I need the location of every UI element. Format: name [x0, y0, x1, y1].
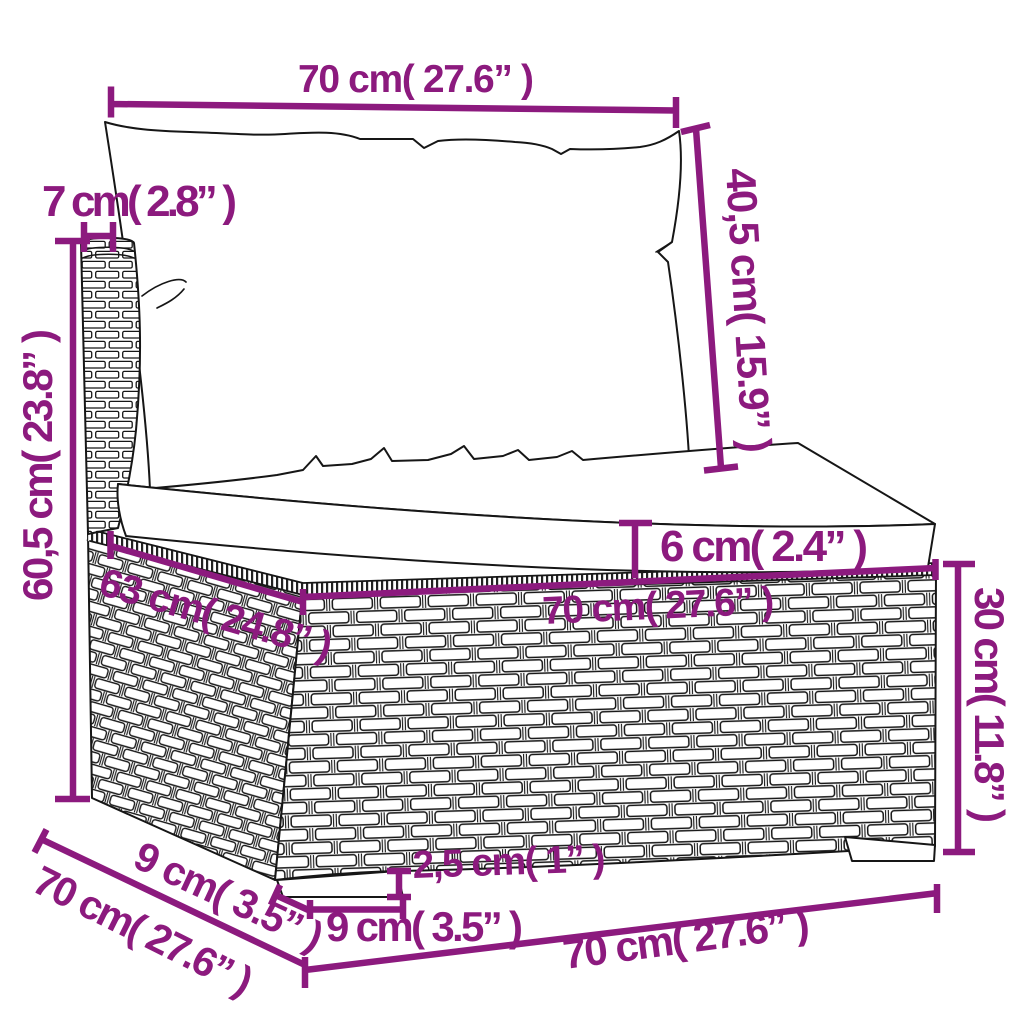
svg-text:70 cm( 27.6” ): 70 cm( 27.6” )	[298, 58, 534, 101]
svg-text:7 cm( 2.8” ): 7 cm( 2.8” )	[42, 177, 237, 226]
svg-text:9 cm( 3.5” ): 9 cm( 3.5” )	[326, 903, 523, 950]
svg-text:2,5 cm( 1” ): 2,5 cm( 1” )	[412, 837, 606, 887]
svg-text:30 cm( 11.8” ): 30 cm( 11.8” )	[966, 587, 1013, 823]
svg-text:60,5 cm( 23.8” ): 60,5 cm( 23.8” )	[14, 329, 61, 601]
svg-text:6 cm( 2.4” ): 6 cm( 2.4” )	[660, 522, 868, 571]
